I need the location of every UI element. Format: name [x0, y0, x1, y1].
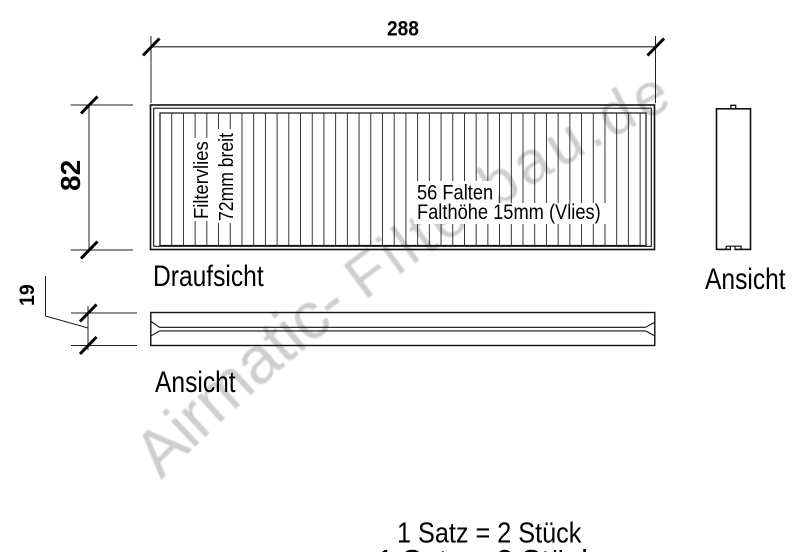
- svg-text:1 Satz = 2 Stück: 1 Satz = 2 Stück: [377, 545, 597, 552]
- svg-text:Ansicht: Ansicht: [155, 365, 236, 399]
- svg-text:288: 288: [387, 18, 419, 41]
- svg-text:82: 82: [55, 160, 86, 191]
- svg-text:Ansicht: Ansicht: [705, 262, 786, 296]
- svg-text:72mm breit: 72mm breit: [215, 132, 237, 221]
- svg-text:19: 19: [16, 284, 39, 306]
- svg-text:Filtervlies: Filtervlies: [191, 141, 213, 219]
- svg-text:Falthöhe 15mm (Vlies): Falthöhe 15mm (Vlies): [417, 201, 601, 224]
- svg-text:Draufsicht: Draufsicht: [153, 259, 264, 293]
